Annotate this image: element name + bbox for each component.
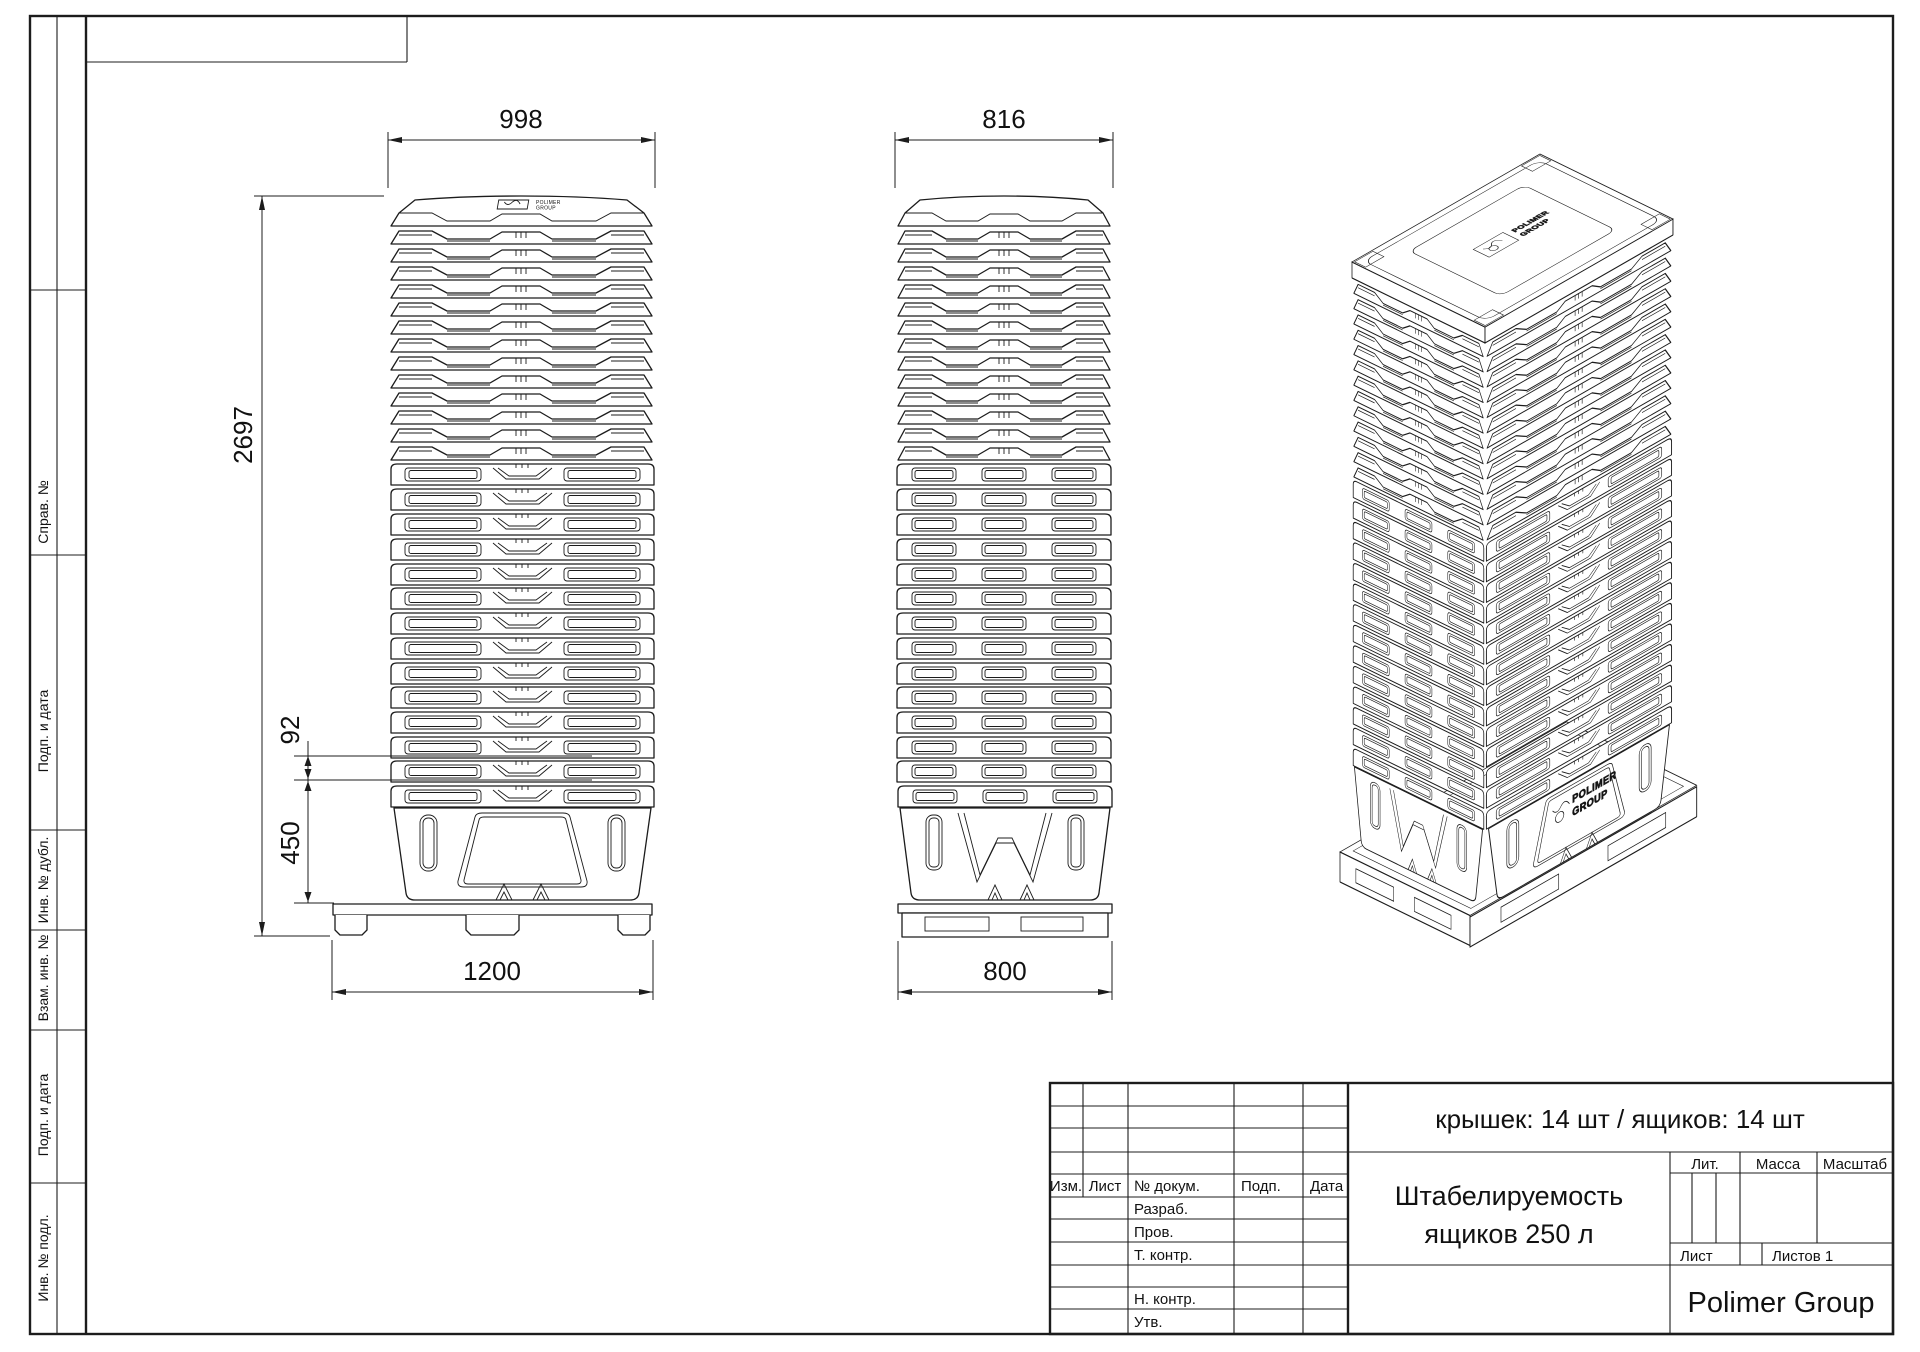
lid-layer	[898, 249, 1110, 262]
dim-front-pallet-width: 1200	[463, 956, 521, 986]
lid-layer	[898, 447, 1110, 460]
box-layer	[897, 539, 1111, 560]
lid-layer	[391, 339, 652, 352]
lid-top	[898, 196, 1110, 226]
drawing-sheet: POLIMER GROUP	[0, 0, 1920, 1352]
col-izm: Изм.	[1050, 1178, 1082, 1195]
box-layer	[391, 638, 654, 659]
box-layer	[391, 761, 654, 782]
lid-layer	[898, 303, 1110, 316]
lid-layer	[391, 447, 652, 460]
dim-front-pitch: 92	[275, 716, 305, 745]
masshtab-label: Масштаб	[1823, 1156, 1887, 1173]
col-list: Лист	[1089, 1178, 1122, 1195]
side-box-stack	[897, 464, 1111, 782]
dim-side-pallet-width: 800	[983, 956, 1026, 986]
lid-layer	[391, 249, 652, 262]
box-layer	[897, 489, 1111, 510]
dim-front-height: 2697	[228, 406, 258, 464]
box-layer	[897, 761, 1111, 782]
lid-layer	[898, 321, 1110, 334]
box-layer	[391, 539, 654, 560]
lid-layer	[391, 357, 652, 370]
box-layer	[897, 613, 1111, 634]
lid-layer	[898, 357, 1110, 370]
lid-layer	[898, 339, 1110, 352]
lid-layer	[898, 393, 1110, 406]
bottom-box	[391, 786, 654, 900]
lid-layer	[391, 285, 652, 298]
lid-layer	[391, 321, 652, 334]
margin-label-inv-podl: Инв. № подл.	[35, 1214, 51, 1301]
lid-layer	[391, 267, 652, 280]
lid-layer	[391, 411, 652, 424]
box-layer	[391, 663, 654, 684]
margin-label-sprav: Справ. №	[35, 480, 51, 544]
pallet	[333, 904, 652, 935]
stack-summary: крышек: 14 шт / ящиков: 14 шт	[1435, 1104, 1805, 1134]
lid-layer	[898, 411, 1110, 424]
massa-label: Масса	[1756, 1156, 1801, 1173]
title-block: Изм. Лист № докум. Подп. Дата Разраб. Пр…	[1050, 1083, 1893, 1334]
box-layer	[391, 687, 654, 708]
box-layer	[897, 638, 1111, 659]
lid-layer	[898, 231, 1110, 244]
box-layer	[391, 613, 654, 634]
doc-name-line1: Штабелируемость	[1395, 1181, 1623, 1211]
margin-label-podp2: Подп. и дата	[35, 1074, 51, 1157]
box-layer	[897, 712, 1111, 733]
box-layer	[897, 588, 1111, 609]
side-view	[897, 196, 1112, 937]
row-nkontr: Н. контр.	[1134, 1291, 1196, 1308]
drawing-canvas: POLIMER GROUP	[0, 0, 1920, 1352]
lid-layer	[391, 231, 652, 244]
row-razrab: Разраб.	[1134, 1201, 1188, 1218]
bottom-box	[898, 786, 1112, 900]
pallet	[898, 904, 1112, 937]
lid-layer	[898, 267, 1110, 280]
lit-label: Лит.	[1691, 1156, 1719, 1173]
isometric-view: POLIMER GROUP	[1340, 154, 1697, 947]
front-lid-stack	[391, 231, 652, 460]
margin-label-inv-dubl: Инв. № дубл.	[35, 837, 51, 924]
dim-front-width: 998	[499, 104, 542, 134]
lid-layer	[898, 429, 1110, 442]
col-dokum: № докум.	[1134, 1178, 1200, 1195]
box-layer	[897, 564, 1111, 585]
box-layer	[391, 564, 654, 585]
front-view	[333, 196, 654, 935]
box-layer	[391, 464, 654, 485]
box-layer	[897, 737, 1111, 758]
listov-label: Листов 1	[1772, 1248, 1833, 1265]
box-layer	[897, 663, 1111, 684]
row-utv: Утв.	[1134, 1314, 1163, 1331]
list-label: Лист	[1680, 1248, 1713, 1265]
box-layer	[897, 687, 1111, 708]
col-data: Дата	[1310, 1178, 1344, 1195]
margin-label-vzam: Взам. инв. №	[35, 935, 51, 1022]
row-prov: Пров.	[1134, 1224, 1174, 1241]
box-layer	[391, 514, 654, 535]
lid-layer	[391, 393, 652, 406]
side-lid-stack	[898, 231, 1110, 460]
lid-layer	[898, 375, 1110, 388]
row-tkontr: Т. контр.	[1134, 1247, 1193, 1264]
lid-layer	[391, 303, 652, 316]
dim-side-width: 816	[982, 104, 1025, 134]
box-layer	[391, 712, 654, 733]
lid-layer	[898, 285, 1110, 298]
lid-layer	[391, 375, 652, 388]
box-layer	[391, 489, 654, 510]
box-layer	[897, 464, 1111, 485]
lid-top	[391, 196, 652, 226]
box-layer	[391, 588, 654, 609]
dim-front-box-height: 450	[275, 821, 305, 864]
front-box-stack	[391, 464, 654, 782]
margin-label-podp1: Подп. и дата	[35, 690, 51, 773]
box-layer	[391, 737, 654, 758]
box-layer	[897, 514, 1111, 535]
company-name: Polimer Group	[1688, 1287, 1875, 1319]
doc-name-line2: ящиков 250 л	[1424, 1219, 1593, 1249]
lid-layer	[391, 429, 652, 442]
col-podp: Подп.	[1241, 1178, 1281, 1195]
